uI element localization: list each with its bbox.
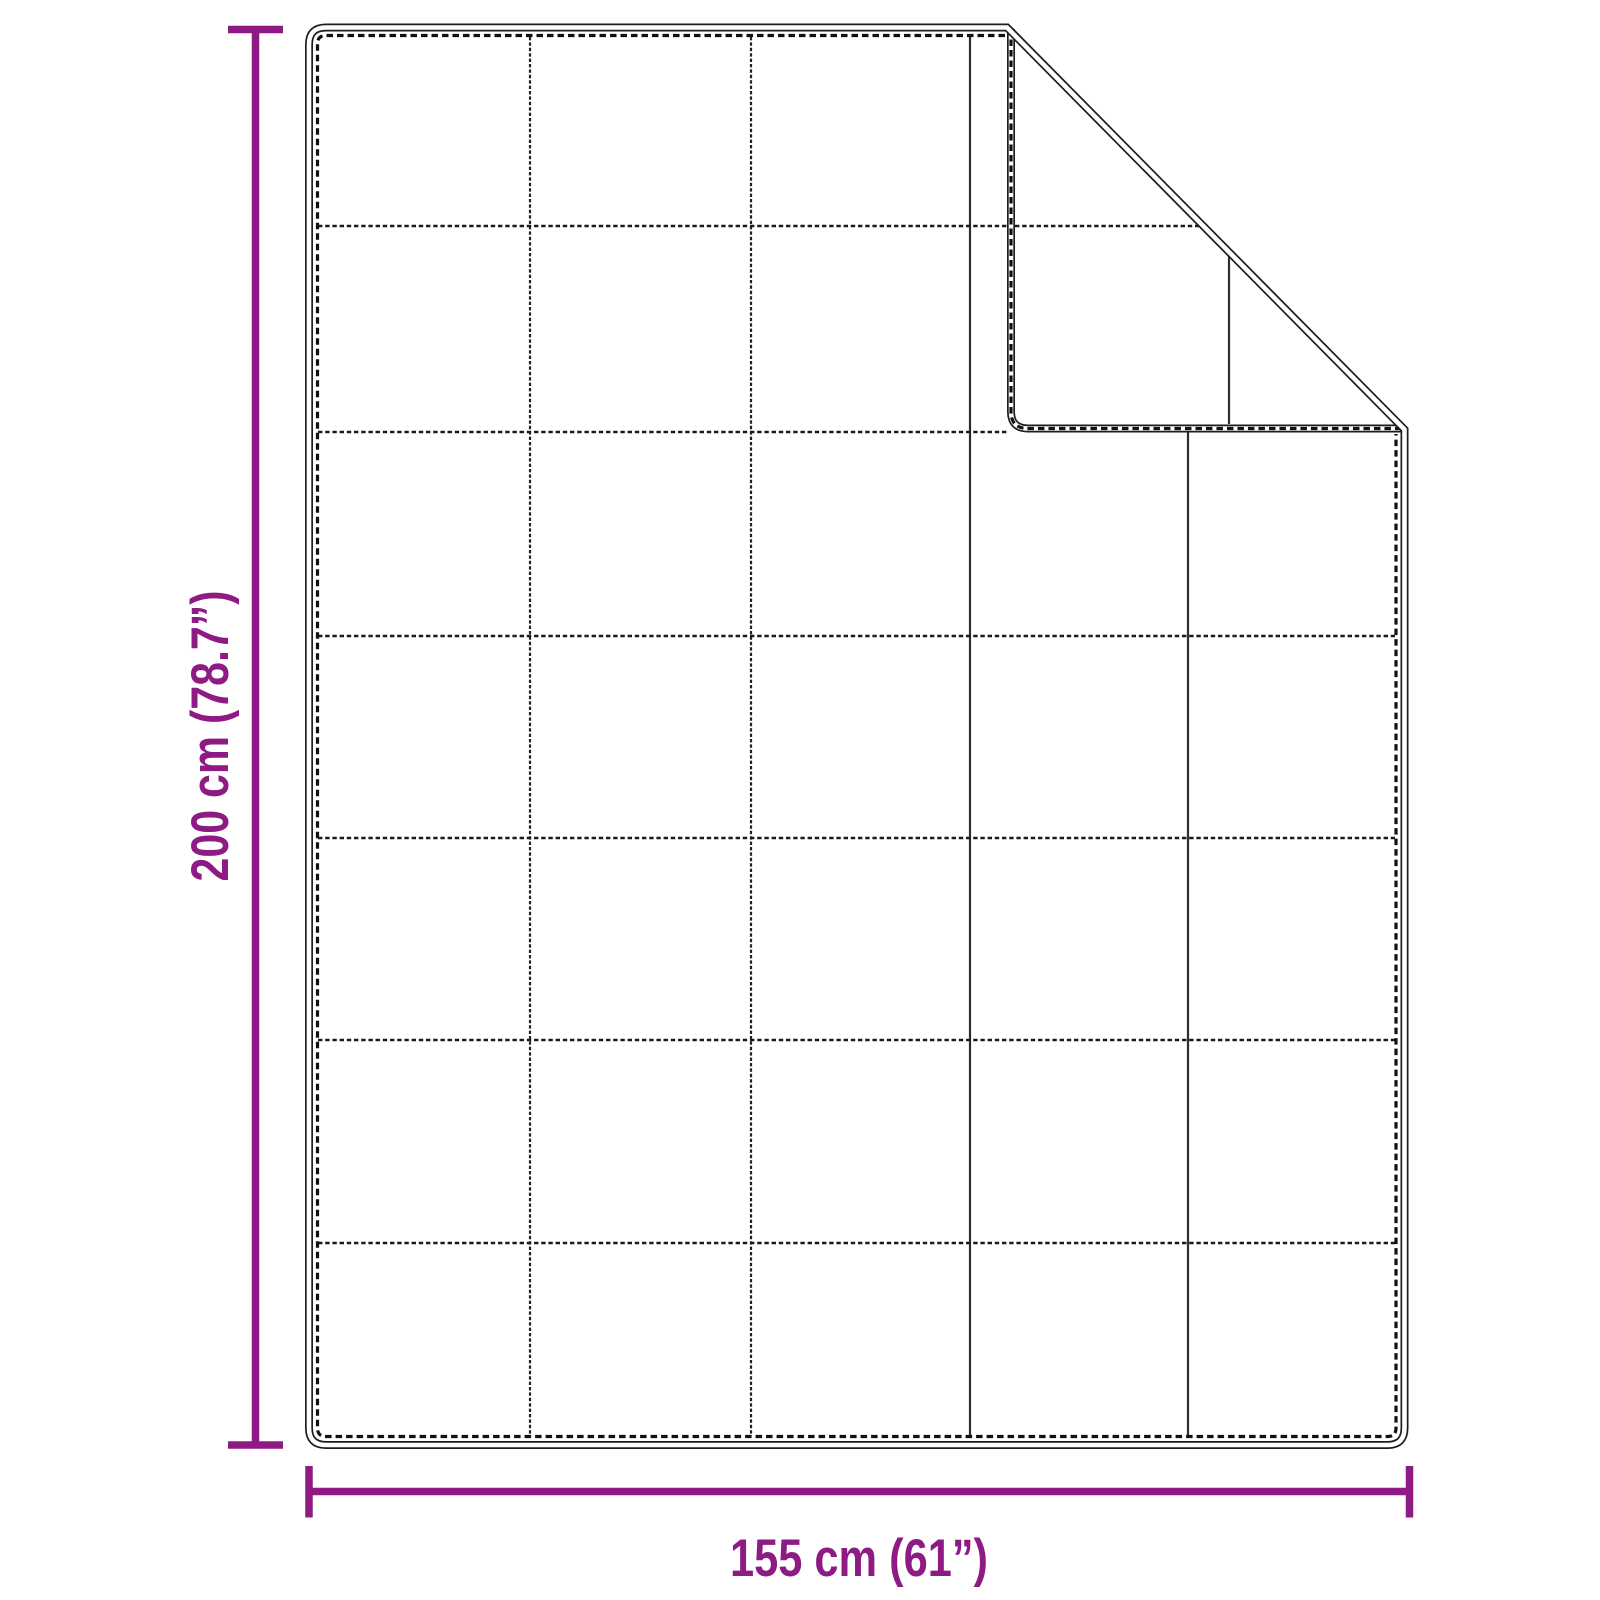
diagram-canvas: 200 cm (78.7”) 155 cm (61”) [0, 0, 1600, 1600]
height-label: 200 cm (78.7”) [181, 591, 240, 882]
height-dimension: 200 cm (78.7”) [181, 30, 283, 1446]
blanket-silhouette [309, 28, 1405, 1446]
blanket-dimension-diagram: 200 cm (78.7”) 155 cm (61”) [0, 0, 1600, 1600]
width-dimension: 155 cm (61”) [309, 1466, 1410, 1588]
width-label: 155 cm (61”) [730, 1529, 988, 1588]
blanket [309, 28, 1405, 1446]
